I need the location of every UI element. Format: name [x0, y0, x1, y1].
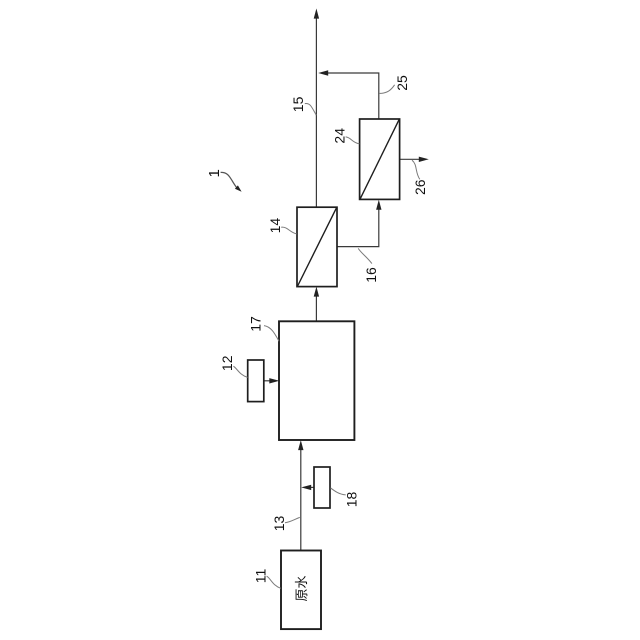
svg-text:12: 12 — [219, 355, 235, 371]
svg-text:15: 15 — [290, 96, 306, 112]
svg-text:1: 1 — [206, 169, 223, 177]
svg-text:原水: 原水 — [294, 575, 309, 601]
svg-text:26: 26 — [412, 179, 428, 195]
svg-text:16: 16 — [363, 267, 379, 283]
svg-text:14: 14 — [267, 218, 283, 234]
svg-text:24: 24 — [331, 128, 347, 144]
svg-text:13: 13 — [271, 516, 287, 532]
svg-text:11: 11 — [252, 569, 268, 584]
svg-text:18: 18 — [344, 492, 360, 508]
svg-text:25: 25 — [394, 75, 410, 91]
svg-text:17: 17 — [248, 316, 264, 332]
